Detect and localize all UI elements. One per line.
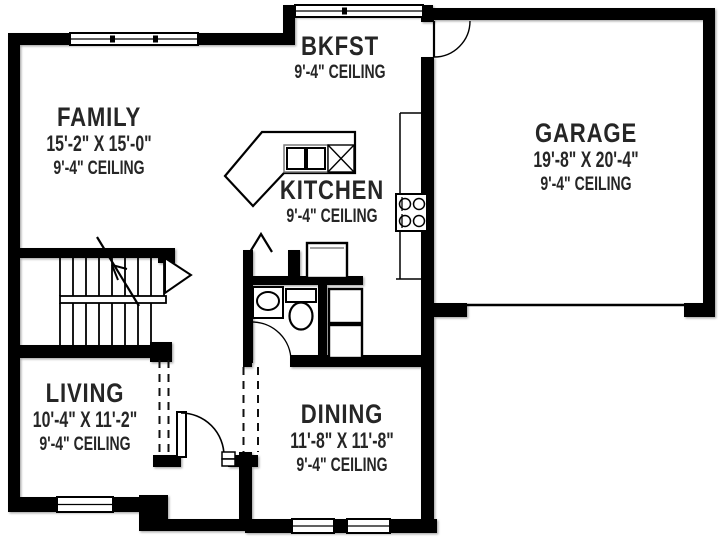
dryer [329, 325, 362, 358]
front-door-jamb [222, 459, 235, 466]
wall-segment [8, 33, 20, 512]
wall-segment [150, 342, 172, 362]
window-mullion [342, 8, 347, 15]
dishwasher [328, 145, 354, 172]
garage-entry-door-swing-arc [434, 21, 470, 57]
wall-segment [421, 8, 715, 20]
wall-segment [684, 303, 715, 317]
laundry-appliances [329, 289, 362, 358]
wall-segment [245, 519, 437, 533]
wall-segment [8, 345, 157, 358]
sink-basin-right [307, 148, 325, 169]
wall-segment [703, 8, 715, 317]
range-cooktop [396, 194, 427, 231]
cased-openings [160, 360, 259, 452]
front-door-leaf [177, 412, 186, 457]
wall-segment [20, 248, 163, 258]
wall-segment [139, 519, 252, 531]
window-mullion [153, 36, 158, 43]
floor-plan-drawing [0, 0, 725, 540]
floor-plan: FAMILY 15'-2" X 15'-0" 9'-4" CEILING BKF… [0, 0, 725, 540]
bathroom-sink-basin [257, 292, 279, 310]
kitchen-fixtures [225, 113, 427, 279]
stair-rail [60, 296, 166, 303]
wall-segment [421, 57, 434, 533]
refrigerator [307, 243, 347, 278]
bathroom-door-swing-arc [252, 322, 291, 361]
wall-segment [288, 250, 300, 278]
wall-segment [433, 303, 467, 317]
wall-segment [318, 285, 327, 360]
toilet-tank [286, 289, 316, 302]
toilet-bowl [290, 303, 313, 330]
window-mullion [110, 36, 115, 43]
front-door-swing-arc [181, 413, 224, 456]
front-door-jamb [222, 452, 235, 459]
pantry-bifold-door [250, 234, 272, 252]
sink-basin-left [287, 148, 305, 169]
washer [329, 289, 362, 323]
understair-door [165, 258, 191, 293]
